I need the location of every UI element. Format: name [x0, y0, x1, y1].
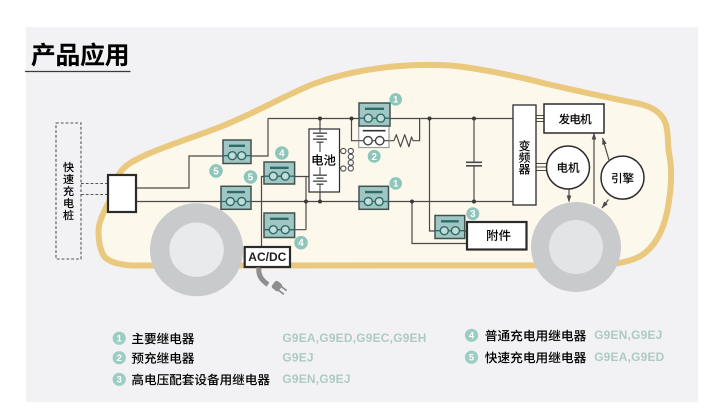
svg-text:G9EN,G9EJ: G9EN,G9EJ	[594, 328, 662, 342]
svg-text:3: 3	[117, 374, 122, 385]
svg-text:AC/DC: AC/DC	[248, 250, 286, 264]
svg-text:5: 5	[469, 352, 474, 363]
svg-text:4: 4	[279, 148, 285, 159]
svg-text:2: 2	[117, 352, 122, 363]
svg-text:1: 1	[117, 333, 122, 344]
svg-text:1: 1	[393, 179, 398, 189]
svg-text:4: 4	[469, 330, 475, 341]
svg-text:5: 5	[213, 166, 219, 177]
svg-text:G9EA,G9ED,G9EC,G9EH: G9EA,G9ED,G9EC,G9EH	[282, 331, 426, 345]
svg-text:5: 5	[248, 172, 254, 183]
svg-text:G9EA,G9ED: G9EA,G9ED	[594, 350, 664, 364]
svg-text:3: 3	[470, 209, 476, 220]
svg-text:4: 4	[298, 238, 304, 249]
svg-text:G9EN,G9EJ: G9EN,G9EJ	[282, 372, 350, 386]
svg-text:G9EJ: G9EJ	[282, 351, 313, 365]
svg-text:1: 1	[393, 95, 398, 105]
svg-text:2: 2	[371, 152, 377, 163]
